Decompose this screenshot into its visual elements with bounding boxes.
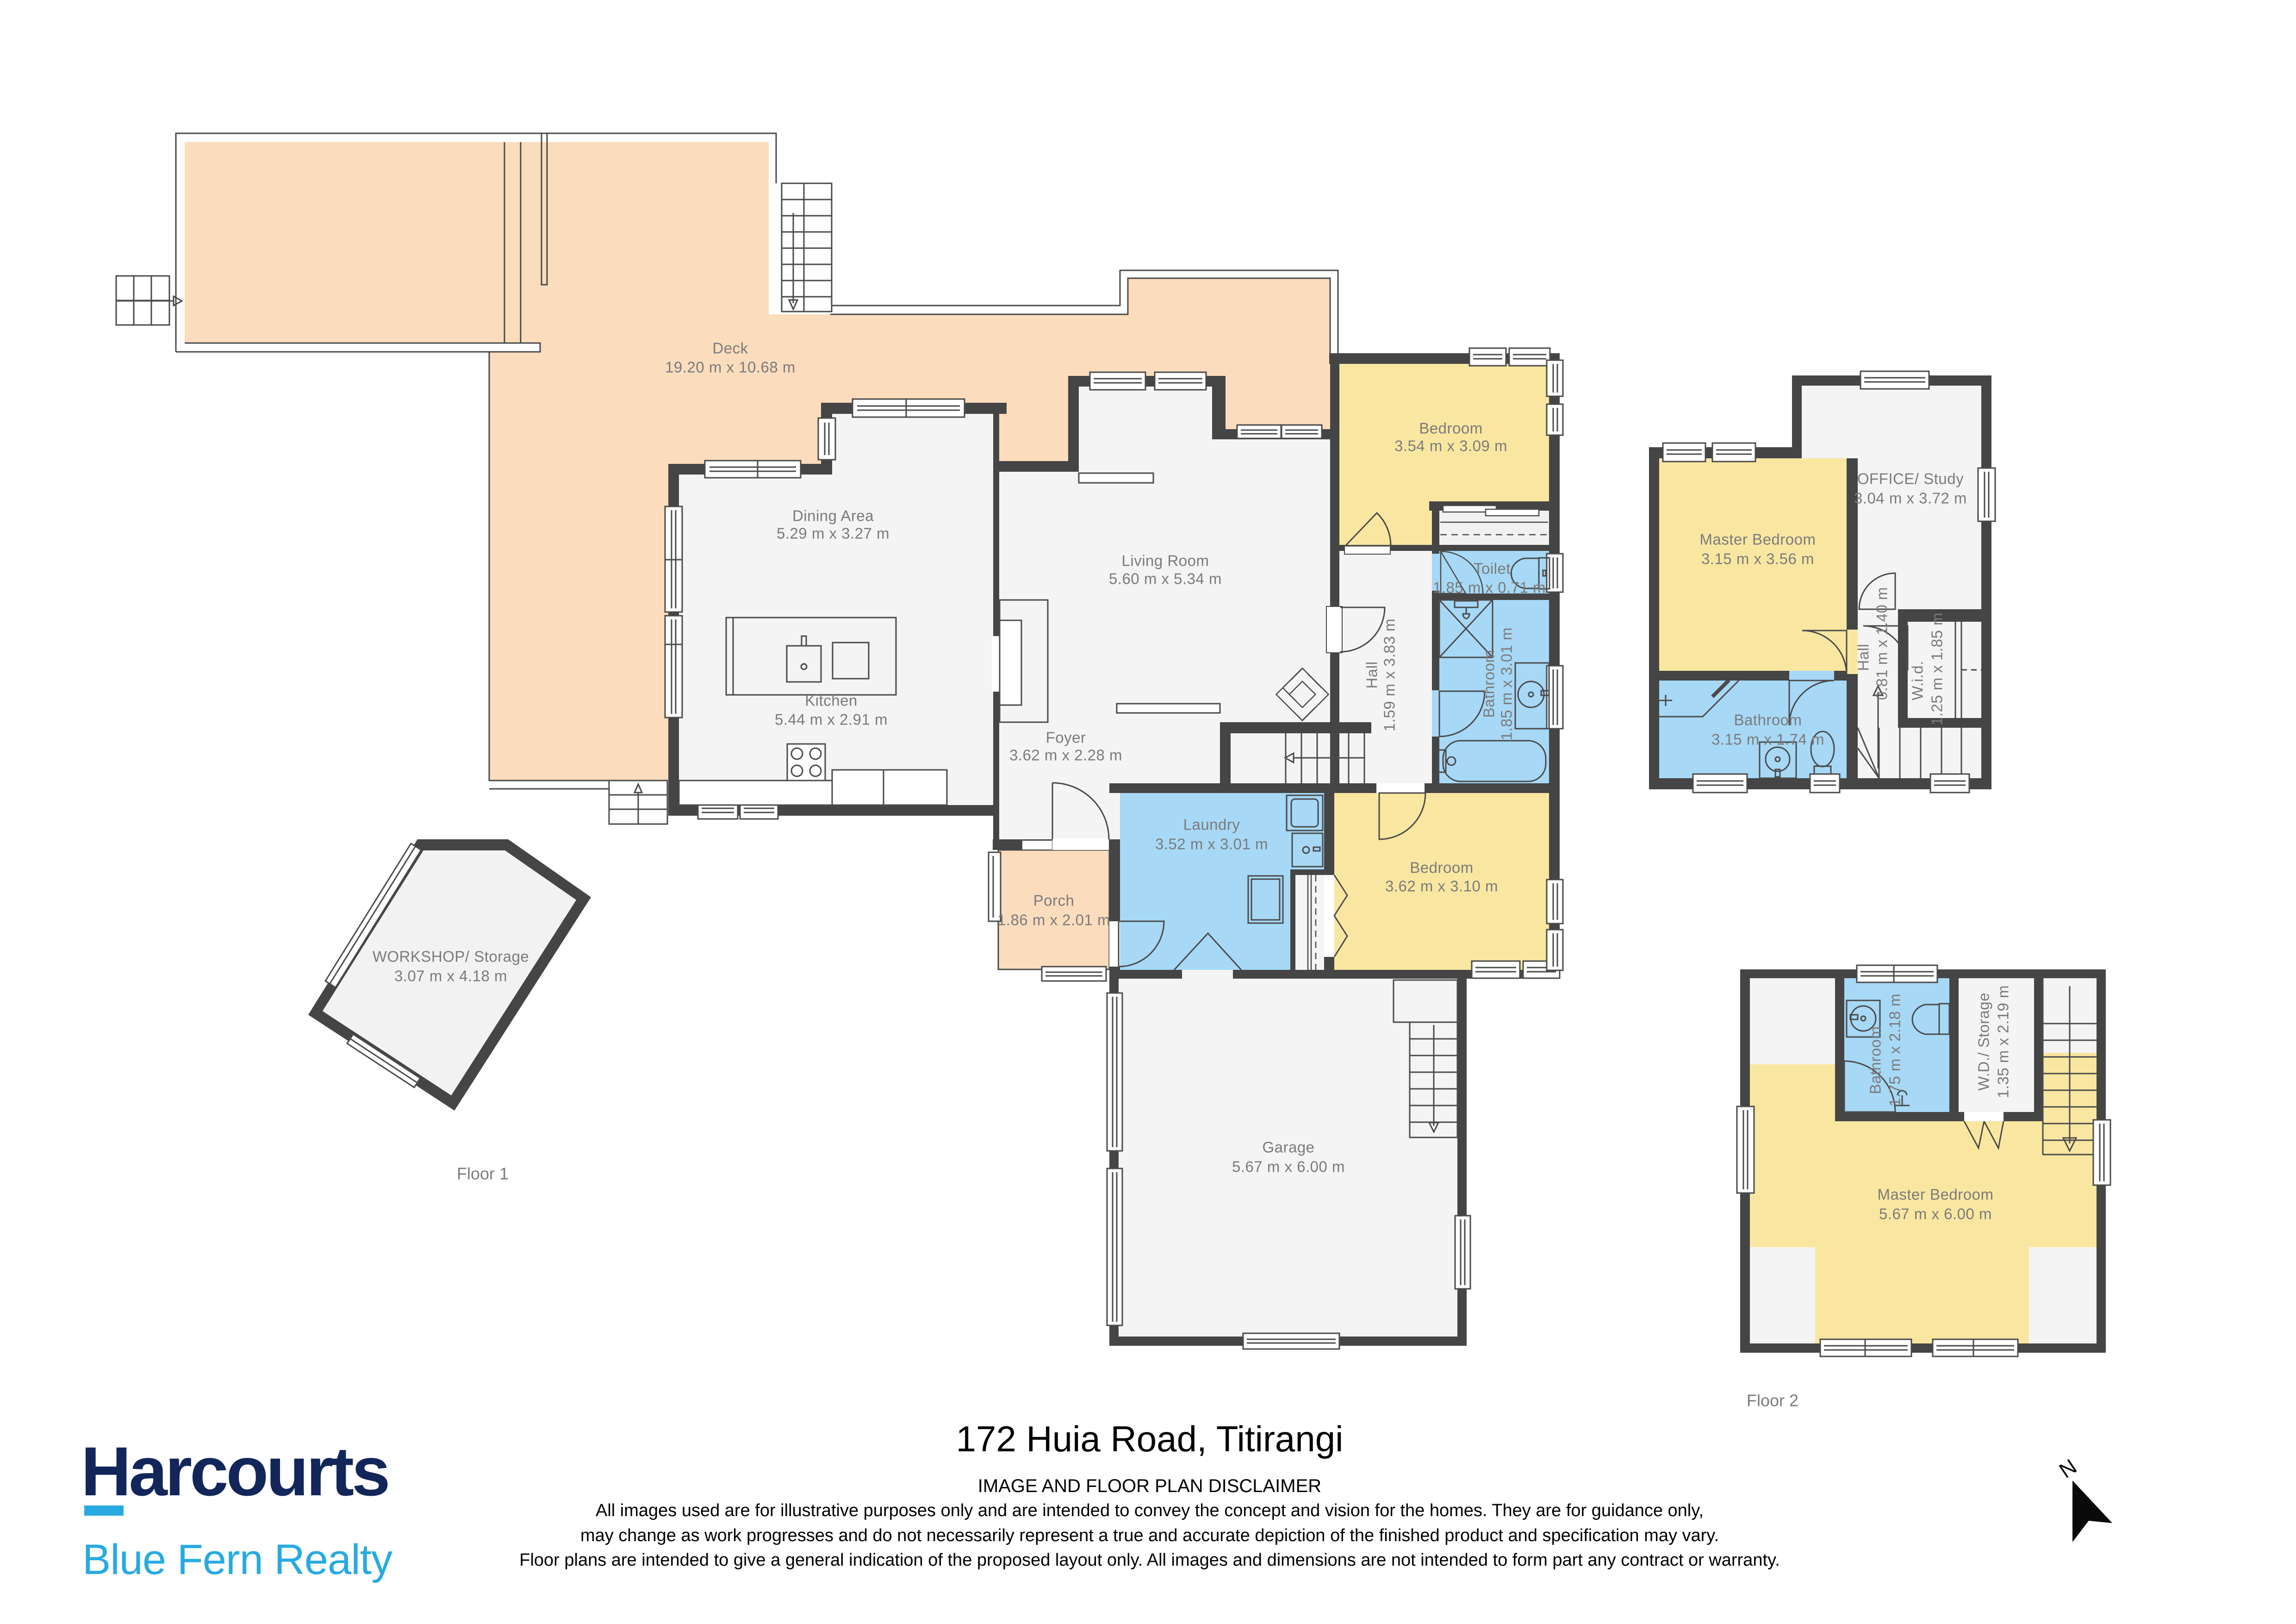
svg-text:Floor 1: Floor 1 (457, 1164, 509, 1183)
svg-text:5.60 m x 5.34 m: 5.60 m x 5.34 m (1109, 570, 1222, 587)
svg-text:Hall: Hall (1855, 644, 1872, 671)
svg-text:Garage: Garage (1262, 1139, 1314, 1156)
svg-text:Master Bedroom: Master Bedroom (1700, 531, 1816, 548)
svg-text:IMAGE AND FLOOR PLAN DISCLAIME: IMAGE AND FLOOR PLAN DISCLAIMER (978, 1476, 1321, 1496)
svg-text:Blue Fern Realty: Blue Fern Realty (82, 1536, 392, 1583)
svg-text:N: N (2055, 1454, 2081, 1483)
svg-text:5.44 m x 2.91 m: 5.44 m x 2.91 m (775, 711, 888, 728)
svg-text:1.86 m x 2.01 m: 1.86 m x 2.01 m (997, 912, 1110, 929)
svg-text:Bathroom: Bathroom (1734, 712, 1802, 729)
svg-text:3.15 m x 3.56 m: 3.15 m x 3.56 m (1701, 550, 1814, 568)
svg-text:Toilet: Toilet (1474, 560, 1511, 577)
svg-text:5.67 m x 6.00 m: 5.67 m x 6.00 m (1232, 1158, 1345, 1175)
svg-text:W.i.d.: W.i.d. (1909, 661, 1926, 700)
svg-text:Harcourts: Harcourts (81, 1432, 388, 1510)
svg-text:Bedroom: Bedroom (1410, 859, 1473, 876)
svg-text:Bathroom: Bathroom (1481, 650, 1498, 718)
svg-text:1.85 m x 0.71 m: 1.85 m x 0.71 m (1433, 579, 1546, 596)
svg-text:1.85 m x 3.01 m: 1.85 m x 3.01 m (1498, 627, 1515, 740)
svg-text:1.59 m x 3.83 m: 1.59 m x 3.83 m (1381, 618, 1398, 731)
svg-text:All images used are for illust: All images used are for illustrative pur… (596, 1501, 1704, 1520)
svg-text:Hall: Hall (1363, 662, 1381, 689)
svg-text:1.75 m x 2.18 m: 1.75 m x 2.18 m (1886, 993, 1904, 1106)
svg-text:5.29 m x 3.27 m: 5.29 m x 3.27 m (777, 525, 890, 542)
svg-text:0.81 m x 1.40 m: 0.81 m x 1.40 m (1873, 587, 1891, 700)
svg-text:Porch: Porch (1033, 892, 1075, 909)
svg-text:1.35 m x 2.19 m: 1.35 m x 2.19 m (1995, 985, 2012, 1098)
svg-text:Master Bedroom: Master Bedroom (1878, 1186, 1994, 1203)
svg-text:Dining Area: Dining Area (792, 507, 874, 525)
svg-text:WORKSHOP/ Storage: WORKSHOP/ Storage (373, 948, 529, 965)
svg-text:Floor 2: Floor 2 (1747, 1391, 1798, 1410)
svg-text:Bathroom: Bathroom (1867, 1026, 1884, 1094)
svg-text:5.67 m x 6.00 m: 5.67 m x 6.00 m (1879, 1206, 1992, 1223)
svg-text:OFFICE/ Study: OFFICE/ Study (1857, 470, 1964, 487)
svg-text:172 Huia Road, Titirangi: 172 Huia Road, Titirangi (956, 1418, 1344, 1459)
svg-text:Kitchen: Kitchen (805, 692, 858, 709)
svg-text:3.15 m x 1.74 m: 3.15 m x 1.74 m (1711, 731, 1824, 748)
svg-text:1.25 m x 1.85 m: 1.25 m x 1.85 m (1929, 612, 1946, 725)
svg-text:Bedroom: Bedroom (1419, 420, 1482, 437)
svg-text:W.D./ Storage: W.D./ Storage (1975, 993, 1992, 1091)
svg-text:Laundry: Laundry (1183, 816, 1240, 833)
svg-text:3.62 m x 3.10 m: 3.62 m x 3.10 m (1385, 878, 1498, 895)
svg-text:3.07 m x 4.18 m: 3.07 m x 4.18 m (394, 968, 507, 985)
svg-text:3.54 m x 3.09 m: 3.54 m x 3.09 m (1394, 437, 1507, 455)
svg-text:Foyer: Foyer (1046, 729, 1086, 746)
svg-text:Living Room: Living Room (1122, 552, 1209, 569)
svg-text:3.52 m x 3.01 m: 3.52 m x 3.01 m (1155, 836, 1268, 853)
svg-text:Deck: Deck (712, 340, 748, 357)
svg-text:3.62 m x 2.28 m: 3.62 m x 2.28 m (1009, 747, 1122, 764)
svg-text:19.20 m x 10.68 m: 19.20 m x 10.68 m (665, 359, 796, 376)
svg-text:may change as work progresses: may change as work progresses and do not… (580, 1526, 1719, 1545)
svg-text:3.04 m x 3.72 m: 3.04 m x 3.72 m (1854, 490, 1967, 507)
svg-text:Floor plans are intended to gi: Floor plans are intended to give a gener… (519, 1550, 1780, 1570)
